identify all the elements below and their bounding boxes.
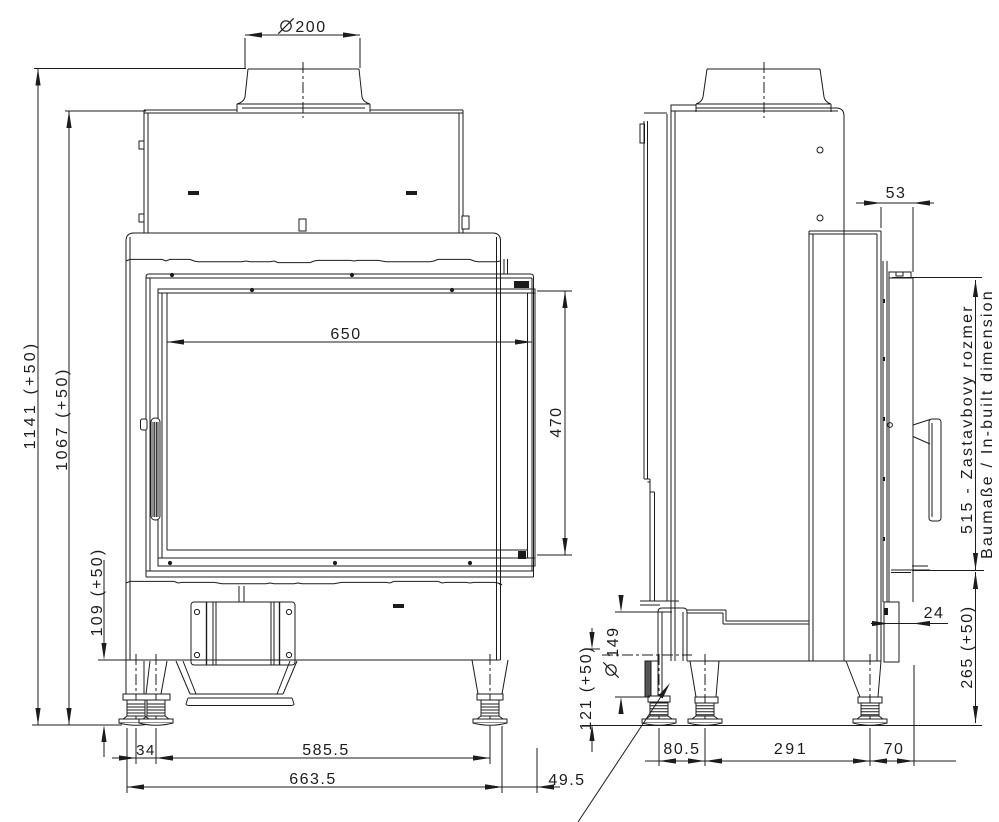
svg-text:24: 24 bbox=[924, 605, 945, 622]
svg-text:53: 53 bbox=[886, 185, 907, 202]
svg-text:70: 70 bbox=[884, 741, 905, 758]
svg-text:121 (+50): 121 (+50) bbox=[578, 645, 595, 730]
svg-text:265 (+50): 265 (+50) bbox=[959, 605, 976, 688]
svg-text:49.5: 49.5 bbox=[548, 772, 585, 789]
svg-text:291: 291 bbox=[774, 741, 808, 758]
svg-text:109 (+50): 109 (+50) bbox=[89, 548, 106, 637]
svg-text:470: 470 bbox=[548, 406, 565, 437]
svg-text:34: 34 bbox=[136, 742, 156, 759]
svg-text:585.5: 585.5 bbox=[302, 742, 350, 759]
svg-text:1067 (+50): 1067 (+50) bbox=[54, 367, 71, 471]
svg-text:Baumaße / In-built dimension: Baumaße / In-built dimension bbox=[979, 289, 996, 559]
svg-text:663.5: 663.5 bbox=[289, 771, 337, 788]
svg-text:515 - Zastavbovy rozmer: 515 - Zastavbovy rozmer bbox=[959, 304, 976, 534]
svg-text:149: 149 bbox=[605, 626, 622, 657]
svg-text:650: 650 bbox=[330, 326, 361, 343]
svg-text:1141 (+50): 1141 (+50) bbox=[22, 341, 39, 450]
svg-text:200: 200 bbox=[295, 19, 326, 36]
svg-text:80.5: 80.5 bbox=[663, 741, 700, 758]
